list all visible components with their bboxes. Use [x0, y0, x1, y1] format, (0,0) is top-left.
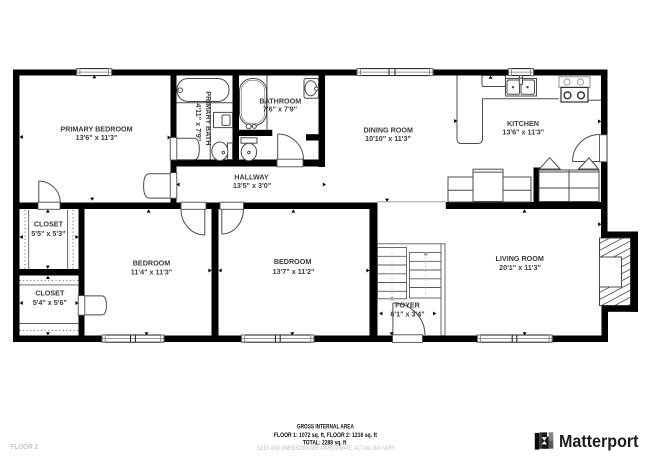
svg-text:11'4" x 11'3": 11'4" x 11'3" [131, 268, 172, 277]
svg-text:CLOSET: CLOSET [35, 289, 65, 298]
svg-text:13'5" x 3'0": 13'5" x 3'0" [233, 181, 271, 190]
svg-text:BEDROOM: BEDROOM [133, 258, 171, 267]
svg-text:Matterport: Matterport [559, 431, 639, 451]
svg-text:PRIMARY BATH: PRIMARY BATH [204, 91, 213, 145]
svg-text:FLOOR 1: 1072 sq. ft, FLOOR 2:: FLOOR 1: 1072 sq. ft, FLOOR 2: 1216 sq. … [274, 432, 377, 439]
svg-text:FLOOR 2: FLOOR 2 [11, 444, 39, 451]
svg-text:5'5" x 5'3": 5'5" x 5'3" [31, 229, 65, 238]
svg-text:CLOSET: CLOSET [34, 220, 64, 229]
svg-text:DINING ROOM: DINING ROOM [363, 125, 413, 134]
svg-text:4'11" x 7'9": 4'11" x 7'9" [194, 103, 203, 141]
svg-text:SIZES AND DIMENSIONS ARE APPRO: SIZES AND DIMENSIONS ARE APPROXIMATE, AC… [257, 446, 396, 452]
svg-text:7'6" x 7'9": 7'6" x 7'9" [263, 105, 297, 114]
svg-text:5'4" x 5'6": 5'4" x 5'6" [33, 298, 67, 307]
svg-text:13'7" x 11'2": 13'7" x 11'2" [273, 267, 315, 276]
svg-text:LIVING ROOM: LIVING ROOM [496, 254, 544, 263]
svg-text:BEDROOM: BEDROOM [274, 257, 312, 266]
svg-text:20'1" x 11'3": 20'1" x 11'3" [499, 263, 541, 272]
svg-text:13'6" x 11'3": 13'6" x 11'3" [502, 128, 544, 137]
svg-text:6'1" x 3'4": 6'1" x 3'4" [390, 310, 424, 319]
svg-text:FOYER: FOYER [395, 301, 421, 310]
svg-text:10'10" x 11'3": 10'10" x 11'3" [365, 134, 411, 143]
svg-text:13'6" x 11'3": 13'6" x 11'3" [76, 133, 118, 142]
svg-text:GROSS INTERNAL AREA: GROSS INTERNAL AREA [297, 423, 354, 430]
svg-text:KITCHEN: KITCHEN [507, 119, 539, 128]
